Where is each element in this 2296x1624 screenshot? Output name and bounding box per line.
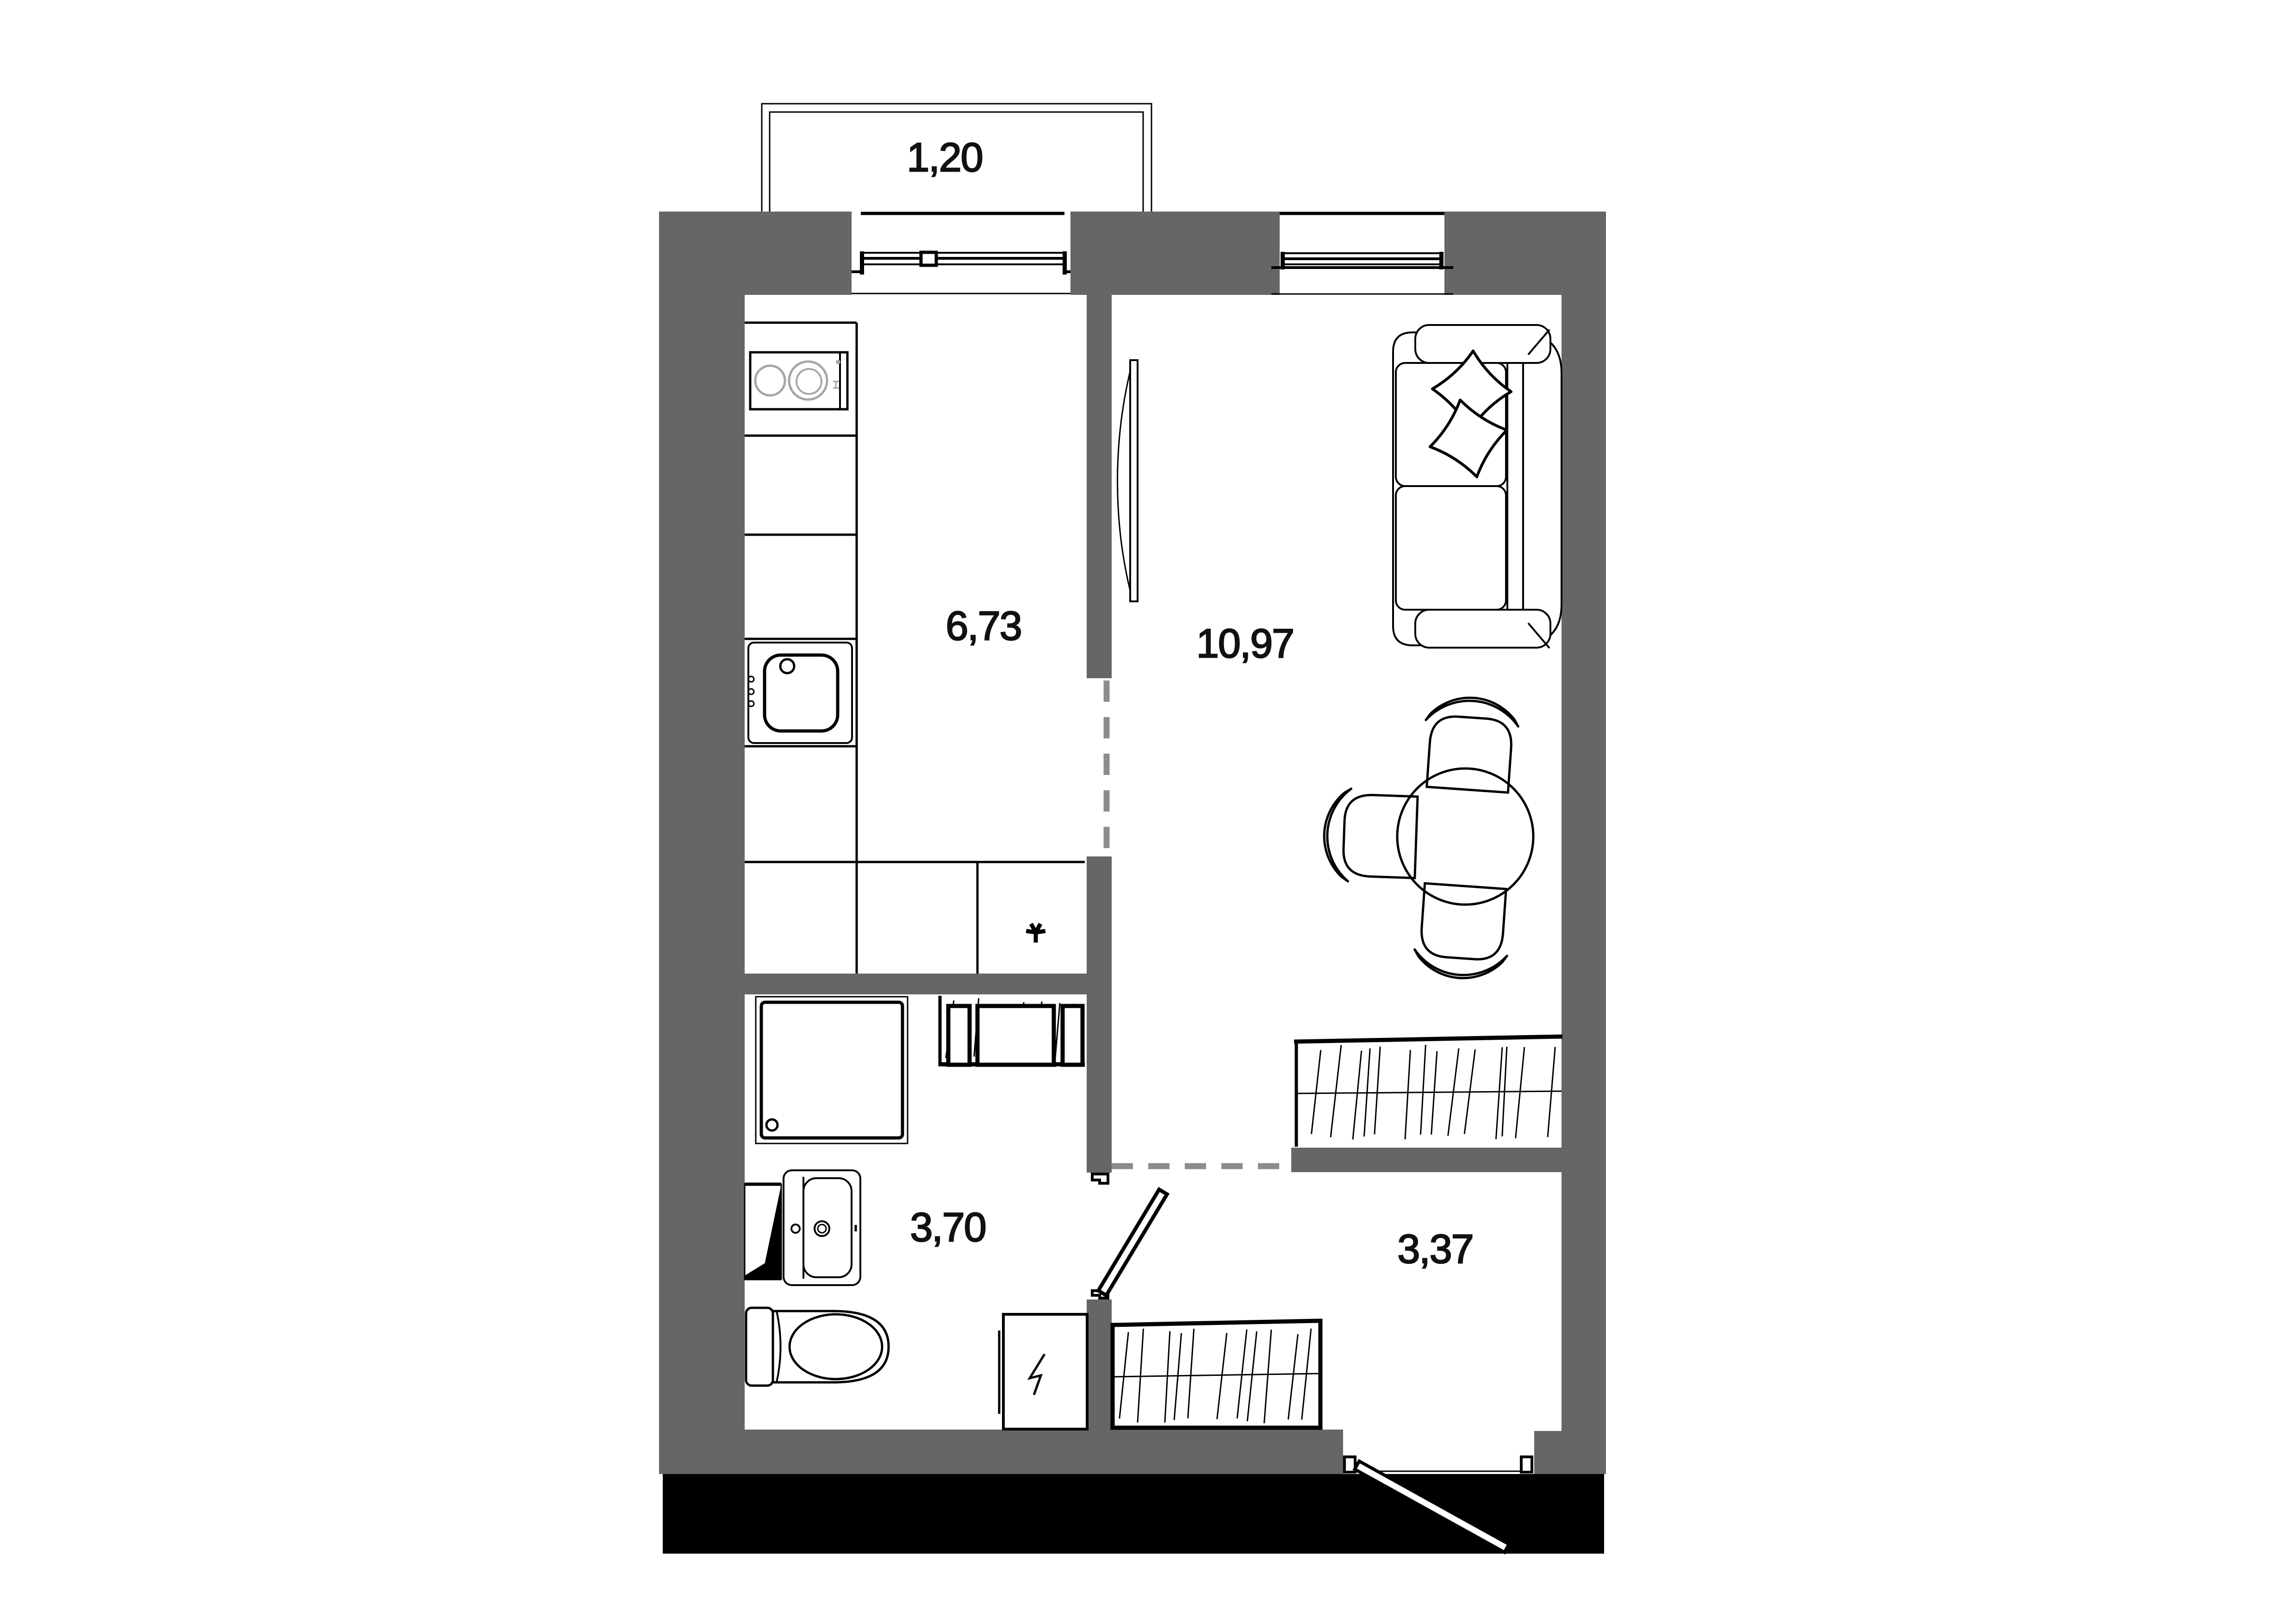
- svg-text:10,97: 10,97: [1196, 620, 1294, 666]
- svg-text:6,73: 6,73: [946, 603, 1021, 649]
- svg-text:1,20: 1,20: [907, 134, 982, 180]
- svg-text:3,37: 3,37: [1397, 1226, 1473, 1272]
- svg-text:3,70: 3,70: [910, 1204, 985, 1250]
